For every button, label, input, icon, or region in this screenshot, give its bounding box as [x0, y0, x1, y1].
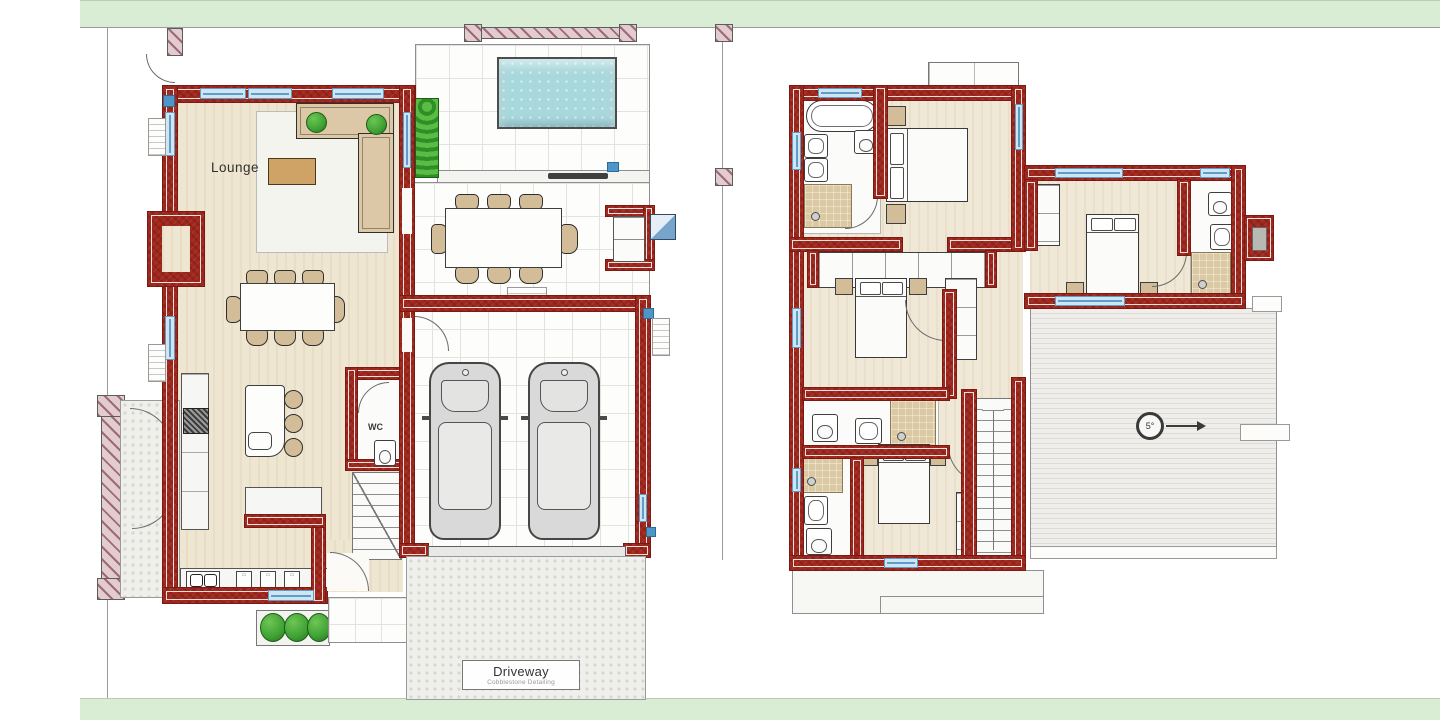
bathroom-sink — [1210, 224, 1234, 250]
wc-wall — [346, 368, 357, 468]
roof-slope-arrow — [1166, 425, 1198, 427]
bed-fold — [1087, 232, 1138, 234]
bush — [260, 613, 286, 642]
bathtub — [806, 100, 878, 132]
patio-chair — [519, 266, 543, 284]
window — [165, 316, 175, 360]
oven — [183, 408, 209, 434]
driveway-label: Driveway Cobblestone Detailing — [462, 660, 580, 690]
window — [248, 88, 292, 99]
wall — [808, 251, 818, 287]
bbq-niche-cabinet — [613, 216, 645, 262]
roof-fascia — [1030, 546, 1277, 559]
bed — [855, 278, 907, 358]
bathroom-sink — [804, 158, 828, 182]
window — [884, 558, 918, 568]
wall — [790, 238, 902, 251]
pillow — [882, 282, 903, 295]
car-mirror — [499, 416, 508, 420]
shower — [890, 400, 936, 448]
dimension-label — [148, 344, 166, 382]
site-green-band-bottom — [80, 698, 1440, 720]
roof-tab — [1240, 424, 1290, 441]
kitchen-peninsula — [245, 487, 322, 515]
car-cabin — [537, 422, 591, 510]
wc-label: WC — [368, 422, 383, 432]
bed-fold — [856, 296, 906, 298]
window — [792, 132, 801, 170]
window — [792, 468, 801, 492]
appliance: ▭ — [260, 571, 276, 588]
pillow — [1091, 218, 1113, 231]
appliance: ▭ — [284, 571, 300, 588]
gate-post — [167, 28, 183, 56]
window — [268, 590, 314, 601]
kitchen-tall-units — [181, 373, 209, 530]
garden-wall-top — [478, 27, 626, 39]
garden-step — [328, 597, 408, 643]
balcony-rail — [880, 596, 1043, 613]
window — [403, 112, 411, 168]
window — [165, 112, 175, 156]
chimney-core — [1252, 227, 1267, 251]
sofa-plant — [306, 112, 327, 133]
bar-stool — [284, 390, 303, 409]
bar-stool — [284, 414, 303, 433]
roof-slope-value: 5° — [1146, 421, 1155, 431]
window — [818, 88, 862, 98]
stair-rail — [993, 410, 994, 550]
sofa-right-arm — [358, 133, 394, 233]
garden-wall-post — [715, 168, 733, 186]
car-antenna — [561, 369, 568, 376]
swimming-pool — [497, 57, 617, 129]
nightstand — [909, 278, 927, 295]
entry-boundary-wall — [101, 398, 122, 600]
site-green-band-top — [80, 0, 1440, 28]
car-mirror — [521, 416, 530, 420]
window — [639, 494, 647, 522]
patio-chair — [487, 266, 511, 284]
nightstand — [886, 106, 906, 126]
nightstand — [886, 204, 906, 224]
garden-wall-post — [619, 24, 637, 42]
bathroom-sink — [804, 134, 828, 158]
pillow — [890, 167, 904, 199]
dishwasher: ▭ — [236, 571, 252, 588]
corner-marker — [646, 527, 656, 537]
toilet — [812, 414, 838, 442]
dimension-label — [148, 118, 166, 156]
window — [1055, 168, 1123, 178]
car-cabin — [438, 422, 492, 510]
nightstand — [835, 278, 853, 295]
wall — [1232, 166, 1245, 308]
staircase-upper — [976, 398, 1014, 566]
driveway-subtitle: Cobblestone Detailing — [469, 679, 573, 686]
bar-stool — [284, 438, 303, 457]
bed-fold — [879, 462, 929, 464]
garden-wall-post — [464, 24, 482, 42]
garden-wall-post — [715, 24, 733, 42]
wall — [943, 290, 956, 398]
sink-basin — [204, 574, 217, 587]
patio-chair — [455, 266, 479, 284]
corner-marker — [607, 162, 619, 172]
garage-wall-top — [400, 296, 650, 311]
car — [528, 362, 600, 540]
wall — [1178, 180, 1190, 255]
window — [1015, 104, 1023, 150]
drain-channel — [548, 173, 608, 179]
bathroom-sink — [804, 496, 828, 525]
window — [332, 88, 384, 99]
patio-chair — [560, 224, 578, 254]
corner-marker — [163, 95, 175, 107]
window — [1055, 296, 1125, 306]
pillow — [890, 133, 904, 165]
bathroom-sink — [855, 418, 882, 444]
car — [429, 362, 501, 540]
car-mirror — [422, 416, 431, 420]
dimension-label — [652, 318, 670, 356]
dining-table — [240, 283, 335, 331]
bed — [886, 128, 968, 202]
window — [200, 88, 246, 99]
sink-basin — [190, 574, 203, 587]
wall — [986, 251, 996, 287]
car-mirror — [598, 416, 607, 420]
garage-door-opening — [402, 318, 412, 352]
window — [1200, 168, 1230, 178]
bed-fold — [907, 129, 909, 201]
wall — [874, 86, 887, 198]
property-line-right — [722, 27, 723, 560]
toilet — [806, 528, 832, 555]
sofa-plant — [366, 114, 387, 135]
awning-symbol — [650, 214, 676, 240]
car-hood — [441, 380, 489, 412]
island-sink — [248, 432, 272, 450]
roof-tab — [1252, 296, 1282, 312]
hedge — [415, 98, 439, 178]
wall — [1025, 180, 1037, 250]
shower — [1191, 252, 1231, 296]
wc-toilet — [374, 440, 396, 466]
chimney-void — [162, 226, 190, 272]
wall — [851, 458, 863, 558]
pillow — [860, 282, 881, 295]
car-antenna — [462, 369, 469, 376]
wall — [245, 515, 325, 527]
toilet — [1208, 192, 1232, 216]
wall — [962, 390, 976, 568]
coffee-table — [268, 158, 316, 185]
patio-door-opening — [402, 188, 412, 234]
pillow — [1114, 218, 1136, 231]
roof-slope-indicator: 5° — [1136, 412, 1164, 440]
stair-up-arrow — [982, 400, 1004, 410]
lounge-label: Lounge — [211, 160, 259, 175]
wall — [1012, 378, 1025, 568]
patio-dining-table — [445, 208, 562, 268]
bed — [1086, 214, 1139, 298]
window — [792, 308, 801, 348]
wall — [803, 446, 949, 458]
car-hood — [540, 380, 588, 412]
wall — [803, 388, 949, 400]
driveway-title: Driveway — [469, 664, 573, 679]
staircase-ground — [352, 472, 402, 560]
floor-plan-sheet: Lounge ▭ ▭ ▭ WC — [0, 0, 1440, 720]
gate-swing-arc — [146, 54, 175, 83]
